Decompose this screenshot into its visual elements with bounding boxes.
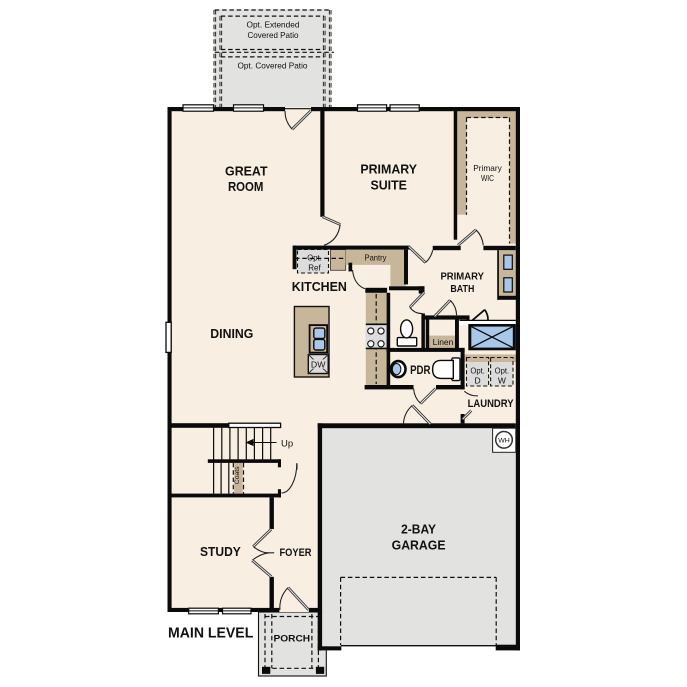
svg-text:LAUNDRY: LAUNDRY (468, 398, 515, 410)
svg-text:Covered Patio: Covered Patio (248, 30, 299, 40)
svg-text:Opt.: Opt. (307, 252, 322, 262)
svg-text:PORCH: PORCH (274, 634, 311, 645)
svg-text:Opt. Extended: Opt. Extended (247, 20, 300, 30)
svg-text:BATH: BATH (450, 283, 474, 295)
svg-text:WH: WH (498, 437, 510, 444)
svg-text:KITCHEN: KITCHEN (292, 279, 347, 294)
svg-text:2-BAY: 2-BAY (401, 522, 436, 537)
svg-text:Primary: Primary (473, 163, 502, 173)
svg-text:Up: Up (281, 438, 293, 449)
svg-text:Pantry: Pantry (365, 253, 388, 263)
svg-text:PRIMARY: PRIMARY (440, 271, 484, 283)
svg-text:SUITE: SUITE (371, 177, 408, 192)
svg-text:Opt. Covered Patio: Opt. Covered Patio (238, 61, 308, 71)
svg-text:GREAT: GREAT (225, 163, 268, 178)
svg-text:FOYER: FOYER (280, 547, 312, 559)
svg-text:GARAGE: GARAGE (392, 538, 446, 553)
svg-text:STUDY: STUDY (200, 544, 241, 559)
svg-text:WIC: WIC (481, 173, 494, 183)
svg-text:Coats: Coats (234, 466, 241, 484)
svg-text:DINING: DINING (210, 326, 253, 341)
svg-text:Opt.: Opt. (470, 366, 485, 376)
svg-text:Opt.: Opt. (495, 366, 510, 376)
svg-text:MAIN LEVEL: MAIN LEVEL (168, 625, 253, 641)
svg-text:Ref: Ref (308, 262, 321, 272)
svg-text:PRIMARY: PRIMARY (360, 162, 417, 177)
svg-text:DW: DW (311, 361, 326, 370)
svg-text:Linen: Linen (433, 337, 454, 347)
svg-text:ROOM: ROOM (228, 179, 264, 194)
svg-text:W: W (498, 376, 506, 386)
svg-text:D: D (475, 376, 481, 386)
svg-text:PDR: PDR (410, 365, 431, 377)
